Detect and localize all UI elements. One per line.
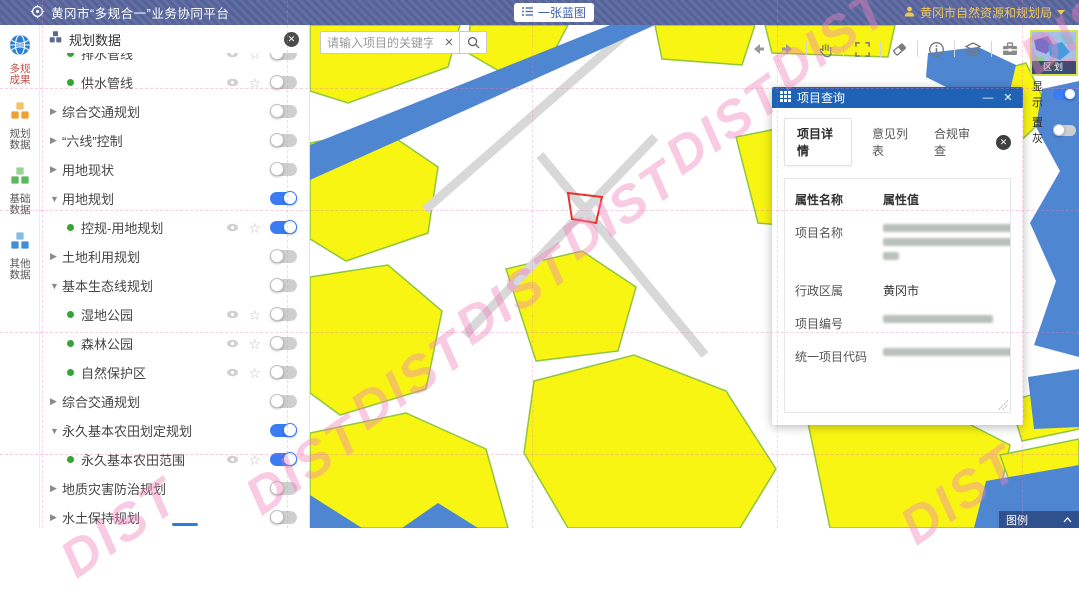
layer-toggle[interactable] — [270, 76, 297, 89]
caret-right-icon[interactable]: ▶ — [50, 164, 62, 175]
layer-row[interactable]: ▶ 综合交通规划 — [40, 97, 309, 126]
table-row: 统一项目代码 — [795, 348, 1000, 365]
layer-toggle[interactable] — [270, 105, 297, 118]
chevron-up-icon — [1063, 517, 1072, 523]
rail-item-label: 基础数据 — [7, 194, 33, 216]
caret-right-icon[interactable]: ▶ — [50, 251, 62, 262]
layer-group-label: 基本生态线规划 — [62, 276, 153, 295]
minimap-gray-row: 置灰 — [1032, 114, 1076, 146]
user-icon — [904, 6, 915, 20]
layer-group-label: 用地规划 — [62, 189, 114, 208]
caret-down-icon[interactable]: ▼ — [50, 426, 62, 436]
layer-leaf-label: 永久基本农田范围 — [81, 450, 185, 469]
table-row: 行政区属 黄冈市 — [795, 282, 1000, 299]
legend-dot — [67, 369, 74, 376]
attr-name: 行政区属 — [795, 282, 883, 299]
left-icon-rail: 多规成果 规划数据 基础数据 其他数据 — [0, 25, 40, 528]
close-icon[interactable]: ✕ — [1001, 91, 1015, 104]
layer-toggle[interactable] — [270, 192, 297, 205]
legend-dot — [67, 79, 74, 86]
eye-icon[interactable] — [226, 53, 239, 63]
tab-项目详情[interactable]: 项目详情 — [784, 118, 852, 166]
rail-item-1[interactable]: 多规成果 — [0, 25, 40, 92]
divider — [843, 41, 844, 57]
legend-bar[interactable]: 图例 — [999, 511, 1079, 528]
star-icon[interactable]: ☆ — [248, 308, 261, 322]
blueprint-button-label: 一张蓝图 — [538, 4, 586, 21]
eye-icon[interactable] — [226, 219, 239, 237]
info-icon[interactable] — [921, 37, 951, 61]
show-toggle[interactable] — [1053, 89, 1076, 100]
layer-row[interactable]: ▶ 综合交通规划 — [40, 387, 309, 416]
star-icon[interactable]: ☆ — [248, 221, 261, 235]
layer-row[interactable]: 永久基本农田范围 ☆ — [40, 445, 309, 474]
layer-leaf-label: 控规-用地规划 — [81, 218, 163, 237]
layer-group-label: 水土保持规划 — [62, 508, 140, 527]
cubes-blue-icon — [9, 231, 31, 256]
layer-toggle[interactable] — [270, 424, 297, 437]
layer-toggle[interactable] — [270, 395, 297, 408]
rail-item-2[interactable]: 规划数据 — [0, 92, 40, 157]
map-toolbar — [743, 37, 1025, 61]
layer-group-label: 用地现状 — [62, 160, 114, 179]
divider — [917, 41, 918, 57]
gray-toggle[interactable] — [1053, 125, 1076, 136]
blueprint-button[interactable]: 一张蓝图 — [514, 3, 594, 22]
attr-name: 项目名称 — [795, 224, 883, 266]
layer-toggle[interactable] — [270, 221, 297, 234]
rail-item-label: 多规成果 — [7, 64, 33, 86]
list-icon — [522, 6, 534, 20]
eye-icon[interactable] — [226, 364, 239, 382]
overview-minimap: 区划 显示 置灰 — [1032, 32, 1076, 146]
layer-toggle[interactable] — [270, 250, 297, 263]
layer-group-label: 永久基本农田划定规划 — [62, 421, 192, 440]
legend-dot — [67, 53, 74, 57]
divider — [954, 41, 955, 57]
caret-right-icon[interactable]: ▶ — [50, 512, 62, 523]
caret-right-icon[interactable]: ▶ — [50, 396, 62, 407]
query-panel-title: 项目查询 — [797, 89, 845, 106]
layer-group-label: 土地利用规划 — [62, 247, 140, 266]
layers-icon[interactable] — [958, 37, 988, 61]
gray-label: 置灰 — [1032, 114, 1049, 146]
layer-leaf-label: 自然保护区 — [81, 363, 146, 382]
app-title-text: 黄冈市“多规合一”业务协同平台 — [51, 3, 229, 22]
eye-icon[interactable] — [226, 306, 239, 324]
minimap-thumbnail[interactable]: 区划 — [1032, 32, 1076, 74]
layer-row[interactable]: 供水管线 ☆ — [40, 68, 309, 97]
legend-dot — [67, 340, 74, 347]
globe-icon — [9, 34, 31, 61]
col-header-value: 属性值 — [883, 191, 1000, 208]
caret-right-icon[interactable]: ▶ — [50, 106, 62, 117]
resize-grip[interactable] — [998, 400, 1008, 410]
cubes-orange-icon — [9, 101, 31, 126]
search-icon[interactable] — [460, 36, 486, 49]
app-title: 黄冈市“多规合一”业务协同平台 — [30, 3, 229, 22]
legend-dot — [67, 456, 74, 463]
col-header-name: 属性名称 — [795, 191, 883, 208]
layer-panel-title: 规划数据 — [69, 30, 121, 49]
project-search-bar: ✕ — [320, 31, 487, 54]
layer-leaf-label: 排水管线 — [81, 53, 133, 63]
layer-toggle[interactable] — [270, 337, 297, 350]
caret-right-icon[interactable]: ▶ — [50, 483, 62, 494]
divider — [806, 41, 807, 57]
layer-group-label: 综合交通规划 — [62, 102, 140, 121]
layer-toggle[interactable] — [270, 134, 297, 147]
back-icon[interactable] — [743, 37, 773, 61]
layer-row[interactable]: 控规-用地规划 ☆ — [40, 213, 309, 242]
eye-icon[interactable] — [226, 451, 239, 469]
layer-row[interactable]: ▶ 用地现状 — [40, 155, 309, 184]
legend-dot — [67, 311, 74, 318]
eraser-icon[interactable] — [884, 37, 914, 61]
query-tabs: 项目详情意见列表合规审查✕ — [772, 108, 1023, 166]
star-icon[interactable]: ☆ — [248, 76, 261, 90]
layer-toggle[interactable] — [270, 163, 297, 176]
user-menu[interactable]: 黄冈市自然资源和规划局 — [904, 0, 1065, 25]
caret-down-icon[interactable]: ▼ — [50, 194, 62, 204]
clear-search-icon[interactable]: ✕ — [439, 36, 459, 49]
layer-row[interactable]: ▼ 用地规划 — [40, 184, 309, 213]
minimize-icon[interactable]: — — [981, 92, 995, 104]
show-label: 显示 — [1032, 78, 1049, 110]
marquee-select-icon[interactable] — [847, 37, 877, 61]
star-icon[interactable]: ☆ — [248, 366, 261, 380]
rail-item-4[interactable]: 其他数据 — [0, 222, 40, 287]
attribute-table: 属性名称 属性值 项目名称 行政区属 黄冈市项目编号 统一项目代码 — [784, 178, 1011, 413]
layer-tree: 排水管线 ☆ 供水管线 ☆ ▶ 综合交通规划 ▶ “六线”控制 ▶ 用地现状 ▼… — [40, 53, 309, 528]
rail-item-label: 规划数据 — [7, 129, 33, 151]
star-icon[interactable]: ☆ — [248, 53, 261, 61]
attr-name: 统一项目代码 — [795, 348, 883, 365]
layer-row[interactable]: ▶ “六线”控制 — [40, 126, 309, 155]
layer-row[interactable]: 自然保护区 ☆ — [40, 358, 309, 387]
divider — [991, 41, 992, 57]
layer-panel: 规划数据 ✕ 排水管线 ☆ 供水管线 ☆ ▶ 综合交通规划 ▶ “六线”控制 ▶… — [40, 25, 310, 528]
scroll-indicator[interactable] — [172, 523, 198, 526]
chevron-down-icon — [1057, 10, 1065, 15]
layer-leaf-label: 供水管线 — [81, 73, 133, 92]
cubes-green-icon — [9, 166, 31, 191]
tab-合规审查[interactable]: 合规审查 — [934, 119, 976, 165]
layer-toggle[interactable] — [270, 482, 297, 495]
layer-row[interactable]: ▶ 地质灾害防治规划 — [40, 474, 309, 503]
layer-row[interactable]: 森林公园 ☆ — [40, 329, 309, 358]
forward-icon[interactable] — [773, 37, 803, 61]
star-icon[interactable]: ☆ — [248, 337, 261, 351]
layer-panel-header: 规划数据 ✕ — [40, 25, 309, 53]
layer-group-label: “六线”控制 — [62, 131, 123, 150]
redacted-value — [883, 238, 1011, 246]
search-input[interactable] — [321, 33, 439, 52]
minimap-show-row: 显示 — [1032, 78, 1076, 110]
layer-panel-close-icon[interactable]: ✕ — [284, 32, 299, 47]
star-icon[interactable]: ☆ — [248, 453, 261, 467]
layer-row[interactable]: ▶ 土地利用规划 — [40, 242, 309, 271]
pan-hand-icon[interactable] — [810, 37, 840, 61]
tab-意见列表[interactable]: 意见列表 — [872, 119, 914, 165]
table-header-row: 属性名称 属性值 — [795, 191, 1000, 208]
layer-row[interactable]: 排水管线 ☆ — [40, 53, 309, 68]
table-row: 项目编号 — [795, 315, 1000, 332]
attr-name: 项目编号 — [795, 315, 883, 332]
cubes-icon — [48, 30, 63, 49]
layer-leaf-label: 湿地公园 — [81, 305, 133, 324]
rail-item-3[interactable]: 基础数据 — [0, 157, 40, 222]
layer-toggle[interactable] — [270, 366, 297, 379]
eye-icon[interactable] — [226, 335, 239, 353]
layer-leaf-label: 森林公园 — [81, 334, 133, 353]
grid-icon — [780, 91, 791, 105]
top-header: 黄冈市“多规合一”业务协同平台 一张蓝图 黄冈市自然资源和规划局 — [0, 0, 1079, 25]
query-panel-header[interactable]: 项目查询 — ✕ — [772, 87, 1023, 108]
legend-dot — [67, 224, 74, 231]
eye-icon[interactable] — [226, 74, 239, 92]
redacted-value — [883, 348, 1011, 356]
caret-right-icon[interactable]: ▶ — [50, 135, 62, 146]
layer-toggle[interactable] — [270, 279, 297, 292]
rail-item-label: 其他数据 — [7, 259, 33, 281]
minimap-label: 区划 — [1032, 61, 1076, 74]
user-name: 黄冈市自然资源和规划局 — [920, 4, 1052, 21]
layer-toggle[interactable] — [270, 308, 297, 321]
app-logo-icon — [30, 4, 45, 22]
layer-toggle[interactable] — [270, 511, 297, 524]
layer-row[interactable]: ▼ 基本生态线规划 — [40, 271, 309, 300]
layer-row[interactable]: ▼ 永久基本农田划定规划 — [40, 416, 309, 445]
layer-row[interactable]: 湿地公园 ☆ — [40, 300, 309, 329]
redacted-value — [883, 252, 899, 260]
tabs-close-icon[interactable]: ✕ — [996, 135, 1011, 150]
attr-value-text: 黄冈市 — [883, 284, 919, 298]
table-row: 项目名称 — [795, 224, 1000, 266]
layer-toggle[interactable] — [270, 53, 297, 60]
layer-toggle[interactable] — [270, 453, 297, 466]
layer-group-label: 地质灾害防治规划 — [62, 479, 166, 498]
divider — [880, 41, 881, 57]
caret-down-icon[interactable]: ▼ — [50, 281, 62, 291]
redacted-value — [883, 224, 1011, 232]
redacted-value — [883, 315, 993, 323]
layer-group-label: 综合交通规划 — [62, 392, 140, 411]
legend-label: 图例 — [1006, 512, 1028, 528]
toolbox-icon[interactable] — [995, 37, 1025, 61]
project-query-panel: 项目查询 — ✕ 项目详情意见列表合规审查✕ 属性名称 属性值 项目名称 行政区… — [772, 87, 1023, 425]
